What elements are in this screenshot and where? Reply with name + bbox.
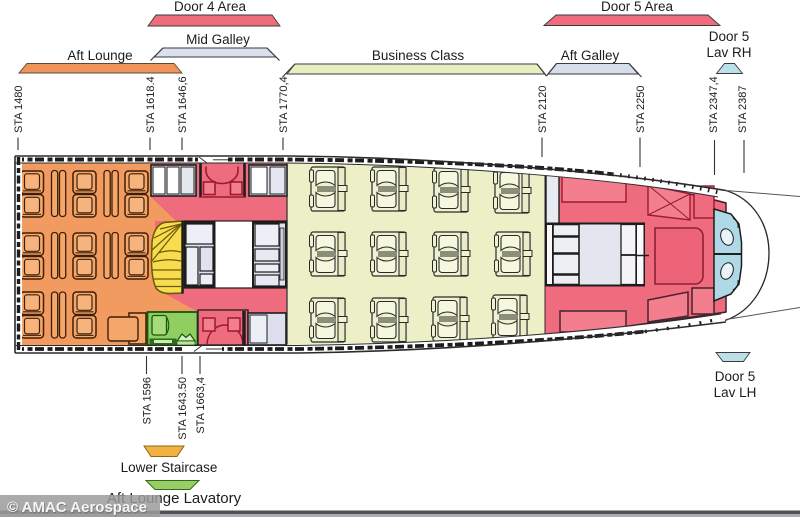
svg-text:Door 5: Door 5 (709, 29, 750, 44)
svg-text:STA 1770,4: STA 1770,4 (278, 76, 290, 133)
svg-text:STA 2250: STA 2250 (635, 86, 647, 134)
svg-text:STA 1643.50: STA 1643.50 (177, 377, 189, 440)
svg-text:Door 4 Area: Door 4 Area (174, 0, 247, 14)
svg-text:Lower Staircase: Lower Staircase (121, 460, 218, 475)
svg-text:STA 2387: STA 2387 (737, 86, 749, 134)
svg-text:STA 1596: STA 1596 (142, 377, 154, 425)
svg-text:Business Class: Business Class (372, 48, 465, 63)
svg-text:Lav RH: Lav RH (706, 45, 751, 60)
svg-text:Aft Galley: Aft Galley (561, 48, 620, 63)
svg-text:STA 1646,6: STA 1646,6 (177, 76, 189, 133)
svg-text:STA 1618.4: STA 1618.4 (145, 76, 157, 133)
svg-text:STA 2120: STA 2120 (537, 86, 549, 134)
svg-text:Aft Lounge: Aft Lounge (67, 48, 132, 63)
svg-text:Door 5: Door 5 (715, 369, 756, 384)
svg-text:Mid Galley: Mid Galley (186, 32, 250, 47)
svg-text:Door 5 Area: Door 5 Area (601, 0, 674, 14)
svg-text:Lav LH: Lav LH (714, 385, 757, 400)
svg-text:© AMAC Aerospace: © AMAC Aerospace (7, 499, 147, 516)
svg-text:STA 2347,4: STA 2347,4 (708, 76, 720, 133)
svg-text:STA 1663,4: STA 1663,4 (195, 377, 207, 434)
svg-text:STA 1480: STA 1480 (13, 86, 25, 134)
